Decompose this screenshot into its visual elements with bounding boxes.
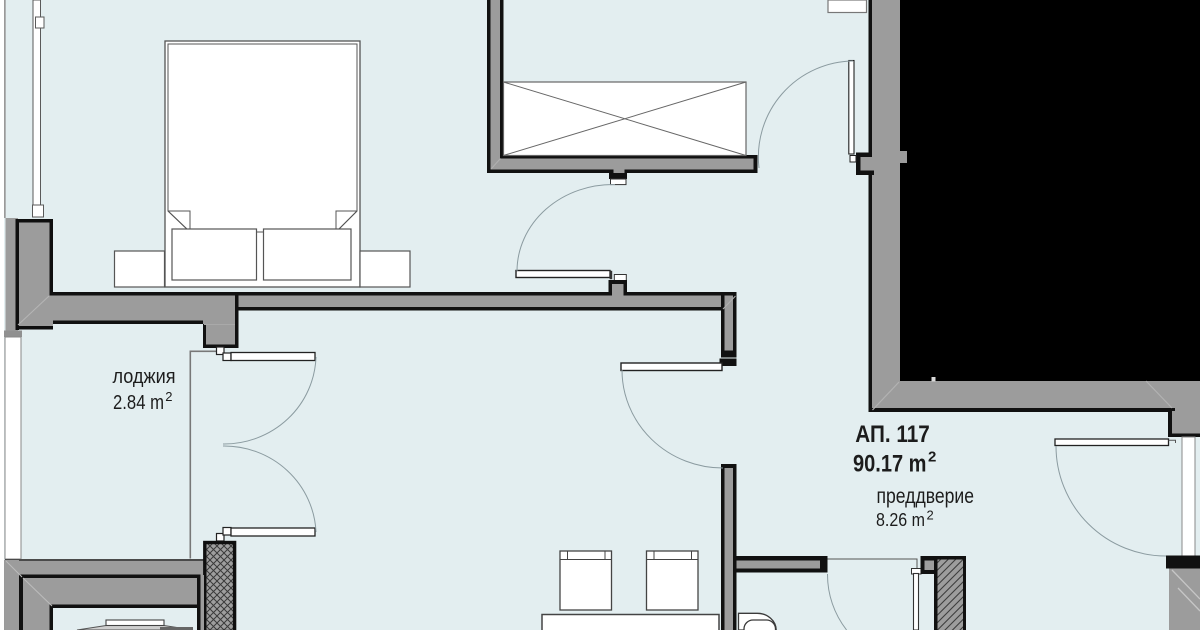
svg-text:2: 2 [927,508,934,523]
svg-text:2: 2 [928,449,936,466]
svg-text:90.17 m: 90.17 m [853,451,927,478]
svg-text:8.26 m: 8.26 m [876,509,925,530]
svg-text:2: 2 [165,389,172,404]
svg-text:2.84 m: 2.84 m [113,391,164,414]
svg-text:преддверие: преддверие [877,484,975,508]
svg-text:АП. 117: АП. 117 [855,421,930,448]
svg-text:лоджия: лоджия [113,365,176,388]
